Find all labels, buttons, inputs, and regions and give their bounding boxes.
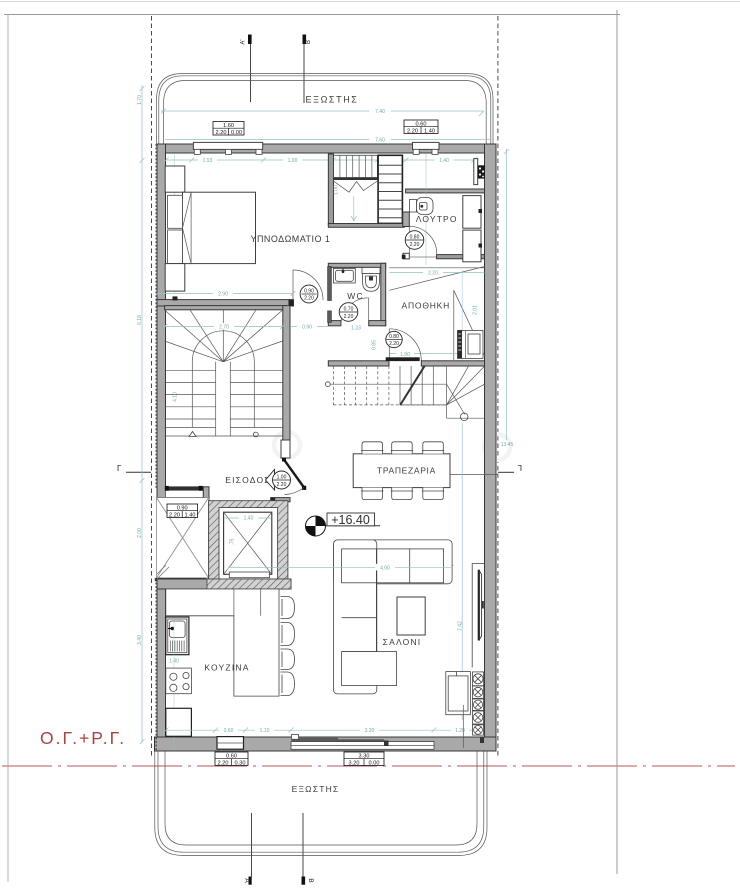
svg-text:2.70: 2.70 — [219, 325, 229, 331]
svg-text:1.00: 1.00 — [277, 474, 287, 480]
svg-text:ΥΠΝΟΔΩΜΑΤΙΟ 1: ΥΠΝΟΔΩΜΑΤΙΟ 1 — [251, 234, 332, 244]
svg-text:0.60: 0.60 — [416, 122, 427, 128]
svg-text:0.90: 0.90 — [177, 506, 188, 512]
svg-text:2.00: 2.00 — [137, 528, 143, 538]
svg-text:ΕΙΣΟΔΟΣ: ΕΙΣΟΔΟΣ — [225, 475, 270, 485]
svg-text:Γ: Γ — [117, 464, 122, 473]
svg-text:ΤΡΑΠΕΖΑΡΙΑ: ΤΡΑΠΕΖΑΡΙΑ — [377, 466, 437, 476]
svg-text:0.85: 0.85 — [372, 340, 378, 350]
svg-text:0.80: 0.80 — [410, 235, 420, 241]
svg-text:2.20: 2.20 — [407, 129, 418, 135]
svg-text:0.90: 0.90 — [302, 325, 312, 331]
svg-text:1.40: 1.40 — [439, 158, 449, 164]
svg-text:4.00: 4.00 — [380, 565, 390, 571]
svg-text:0.00: 0.00 — [231, 130, 242, 136]
svg-text:2.20: 2.20 — [304, 296, 314, 302]
svg-text:1.33: 1.33 — [351, 326, 361, 332]
svg-text:1.70: 1.70 — [137, 95, 143, 105]
svg-text:ΣΑΛΟΝΙ: ΣΑΛΟΝΙ — [383, 637, 422, 647]
svg-text:2.20: 2.20 — [389, 341, 399, 347]
svg-text:3.40: 3.40 — [137, 635, 143, 645]
svg-text:1.93: 1.93 — [203, 158, 213, 164]
svg-text:ΕΞΩΣΤΗΣ: ΕΞΩΣΤΗΣ — [306, 95, 359, 105]
svg-text:1.40: 1.40 — [185, 513, 196, 519]
svg-text:1.40: 1.40 — [244, 516, 254, 522]
svg-text:ΛΟΥΤΡΟ: ΛΟΥΤΡΟ — [416, 214, 458, 224]
svg-text:1.40: 1.40 — [169, 659, 179, 665]
svg-text:0.80: 0.80 — [389, 334, 399, 340]
svg-text:Β: Β — [306, 40, 312, 44]
svg-text:7.60: 7.60 — [375, 138, 385, 144]
svg-text:WC: WC — [347, 291, 364, 301]
svg-text:13.45: 13.45 — [501, 442, 514, 448]
svg-text:1.00: 1.00 — [288, 158, 298, 164]
svg-text:6.18: 6.18 — [137, 315, 143, 325]
svg-text:1.90: 1.90 — [400, 352, 410, 358]
svg-text:ΚΟΥΖΙΝΑ: ΚΟΥΖΙΝΑ — [204, 663, 249, 673]
svg-text:1.00: 1.00 — [334, 185, 340, 195]
svg-text:2.20: 2.20 — [344, 314, 354, 320]
svg-text:2.20: 2.20 — [169, 513, 180, 519]
svg-text:4.10: 4.10 — [173, 392, 179, 402]
svg-text:2.90: 2.90 — [218, 292, 228, 298]
svg-text:3.20: 3.20 — [349, 761, 360, 767]
svg-text:Α': Α' — [241, 39, 247, 44]
svg-text:Ο.Γ.+Ρ.Γ.: Ο.Γ.+Ρ.Γ. — [40, 728, 126, 748]
svg-text:2.20: 2.20 — [410, 242, 420, 248]
svg-text:2.01: 2.01 — [473, 305, 479, 315]
svg-text:Β: Β — [307, 878, 314, 882]
svg-text:+16.40: +16.40 — [331, 513, 370, 527]
svg-text:.75: .75 — [230, 538, 236, 545]
svg-text:1.10: 1.10 — [260, 728, 270, 734]
svg-text:0.30: 0.30 — [235, 761, 246, 767]
svg-text:0.90: 0.90 — [304, 289, 314, 295]
svg-text:Α: Α — [243, 878, 250, 883]
svg-text:0.00: 0.00 — [369, 761, 380, 767]
svg-text:ΑΠΟΘΗΚΗ: ΑΠΟΘΗΚΗ — [402, 301, 451, 311]
svg-text:2.20: 2.20 — [216, 130, 227, 136]
svg-text:3.30: 3.30 — [365, 728, 375, 734]
svg-text:3.30: 3.30 — [359, 754, 370, 760]
svg-text:1.60: 1.60 — [223, 123, 234, 129]
svg-text:0.60: 0.60 — [226, 754, 237, 760]
svg-text:0.70: 0.70 — [344, 307, 354, 313]
svg-text:1.40: 1.40 — [424, 129, 435, 135]
svg-text:2.20: 2.20 — [277, 482, 287, 488]
svg-text:0.60: 0.60 — [224, 728, 234, 734]
svg-text:2.20: 2.20 — [218, 761, 229, 767]
svg-text:Γ: Γ — [517, 464, 522, 473]
svg-text:7.40: 7.40 — [375, 109, 385, 115]
svg-text:ΕΞΩΣΤΗΣ: ΕΞΩΣΤΗΣ — [292, 784, 340, 794]
svg-text:2.20: 2.20 — [428, 271, 438, 277]
svg-text:7.42: 7.42 — [458, 621, 464, 631]
